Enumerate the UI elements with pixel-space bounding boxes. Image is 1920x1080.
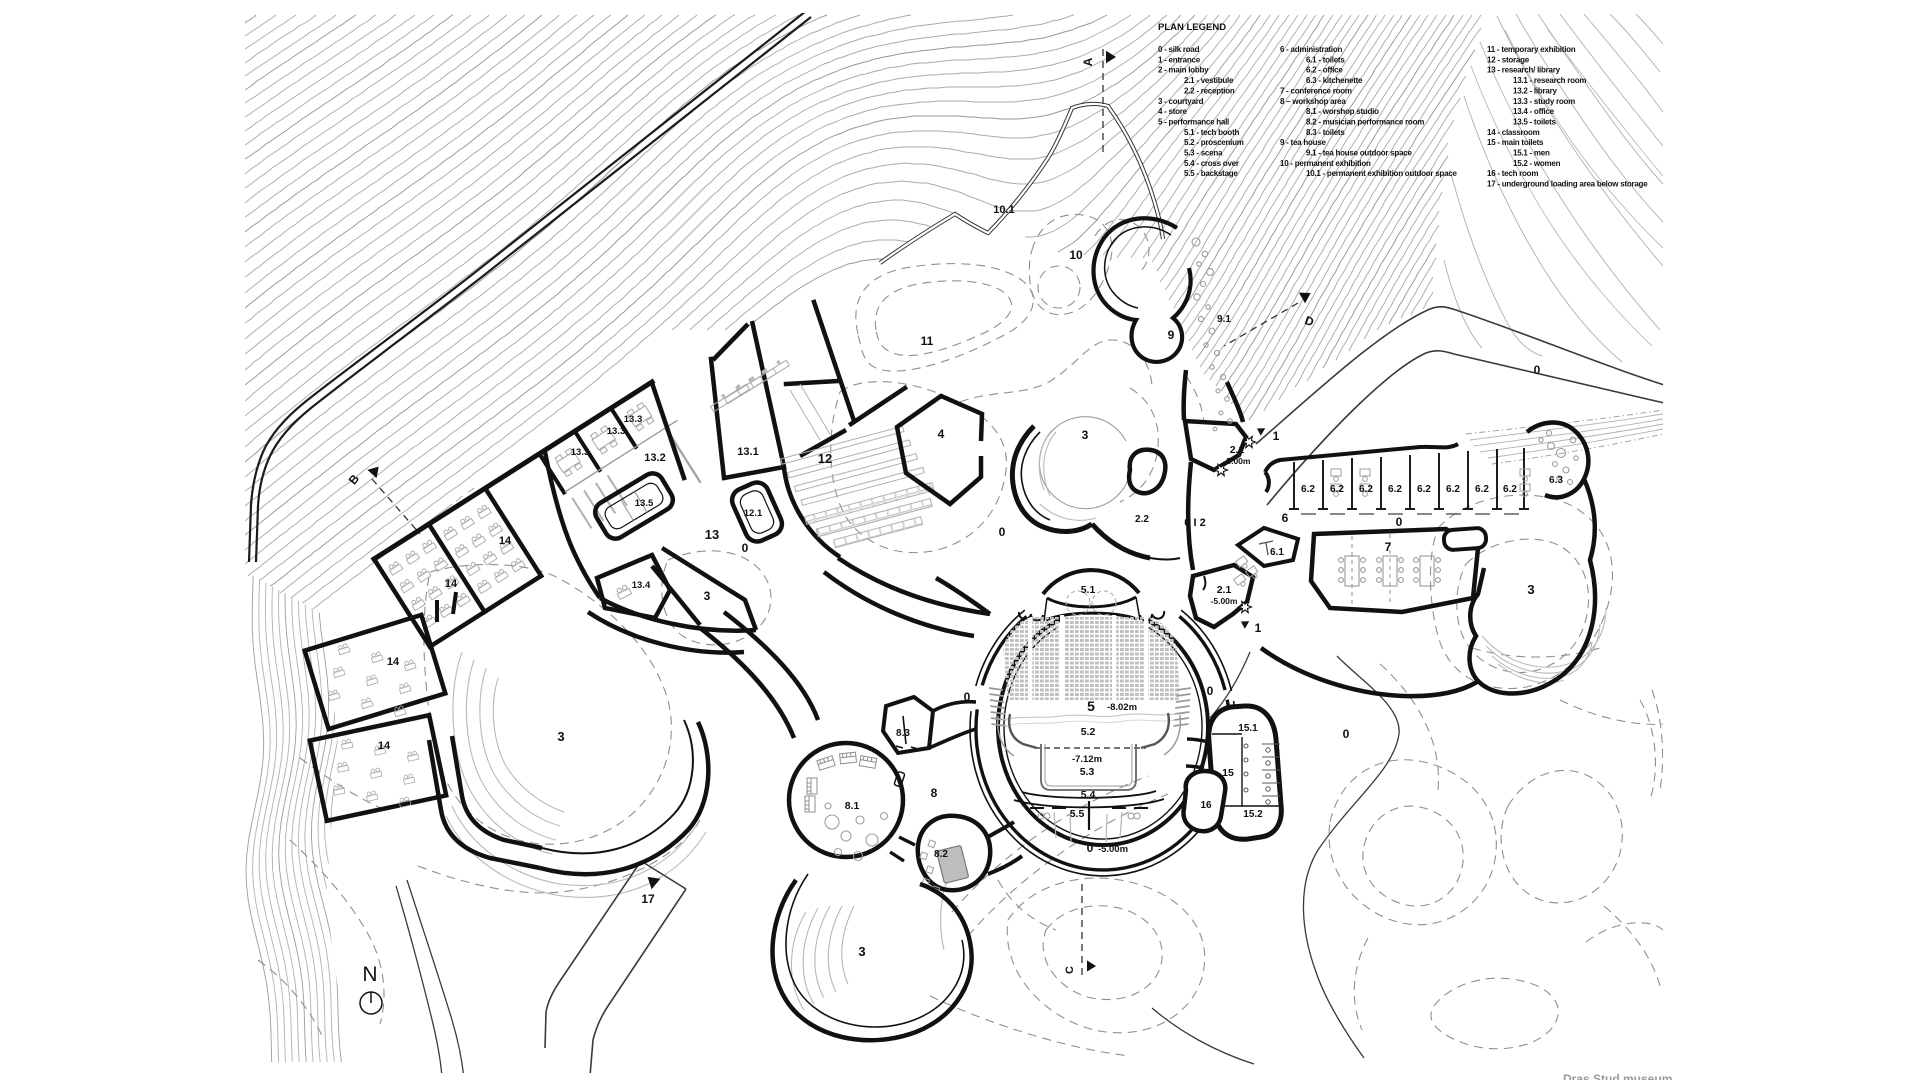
svg-text:7: 7 [1385,540,1392,554]
svg-text:0: 0 [742,541,749,555]
svg-text:14: 14 [445,578,458,590]
svg-text:6.3 - kitchenette: 6.3 - kitchenette [1306,76,1363,85]
svg-text:6.1: 6.1 [1270,547,1284,558]
svg-text:0: 0 [999,525,1006,539]
svg-text:-7.12m: -7.12m [1072,754,1102,765]
svg-text:2.1 - vestibule: 2.1 - vestibule [1184,76,1234,85]
svg-text:3 - courtyard: 3 - courtyard [1158,97,1204,106]
svg-text:8.1: 8.1 [845,800,860,812]
svg-text:13.4 - office: 13.4 - office [1513,107,1555,116]
svg-text:16: 16 [1200,800,1212,811]
svg-text:8.1 - worshop studio: 8.1 - worshop studio [1306,107,1379,116]
svg-text:Dras Stud museum: Dras Stud museum [1563,1072,1672,1080]
svg-text:6.2: 6.2 [1359,484,1373,495]
svg-text:13.5: 13.5 [635,498,654,509]
svg-text:9.1: 9.1 [1217,314,1231,325]
svg-text:3: 3 [858,944,865,959]
svg-text:0 I 2: 0 I 2 [1184,517,1205,529]
svg-text:2.1: 2.1 [1230,444,1245,456]
svg-text:13 - research/ library: 13 - research/ library [1487,66,1561,75]
svg-text:A: A [1081,57,1095,66]
svg-text:6.2: 6.2 [1388,484,1402,495]
svg-text:13.3: 13.3 [571,447,590,458]
svg-text:9.1 - tea house outdoor space: 9.1 - tea house outdoor space [1306,149,1412,158]
svg-text:13.5 - toilets: 13.5 - toilets [1513,117,1557,126]
svg-text:10 - permanent exhibition: 10 - permanent exhibition [1280,159,1371,168]
svg-text:5.1: 5.1 [1081,584,1096,596]
svg-text:8.2: 8.2 [934,849,948,860]
svg-text:5: 5 [1087,698,1095,714]
svg-text:6.2: 6.2 [1330,484,1344,495]
svg-text:10.1 - permanent exhibition ou: 10.1 - permanent exhibition outdoor spac… [1306,169,1457,178]
svg-text:13.3 - study room: 13.3 - study room [1513,97,1575,106]
svg-text:0: 0 [1396,515,1403,529]
svg-text:6.2: 6.2 [1503,484,1517,495]
svg-text:6.2 - office: 6.2 - office [1306,66,1343,75]
svg-text:8.2 - musician performance roo: 8.2 - musician performance room [1306,117,1424,126]
svg-text:16 - tech room: 16 - tech room [1487,169,1538,178]
svg-text:5.2 - proscenium: 5.2 - proscenium [1184,138,1244,147]
svg-text:1: 1 [1273,429,1280,443]
svg-text:5.5 - backstage: 5.5 - backstage [1184,169,1238,178]
svg-text:0: 0 [964,690,971,704]
svg-text:6.1 - toilets: 6.1 - toilets [1306,55,1345,64]
svg-text:10.1: 10.1 [993,204,1014,216]
svg-text:12.1: 12.1 [744,508,763,519]
svg-text:15.2 - women: 15.2 - women [1513,159,1561,168]
svg-text:0: 0 [1087,841,1094,855]
svg-text:0: 0 [1534,363,1541,377]
svg-text:9: 9 [1168,328,1175,342]
svg-text:13.1: 13.1 [737,446,758,458]
svg-text:8 – workshop area: 8 – workshop area [1280,97,1346,106]
svg-text:13.3: 13.3 [607,426,626,437]
svg-text:12 - storage: 12 - storage [1487,55,1530,64]
svg-text:N: N [362,963,377,986]
svg-text:4 - store: 4 - store [1158,107,1188,116]
svg-text:3: 3 [1527,582,1534,597]
svg-text:12: 12 [818,451,832,466]
svg-text:15.1 - men: 15.1 - men [1513,149,1550,158]
svg-text:13.4: 13.4 [632,580,651,591]
svg-text:3: 3 [557,729,564,744]
svg-text:5.1 - tech booth: 5.1 - tech booth [1184,128,1239,137]
svg-text:11 - temporary exhibition: 11 - temporary exhibition [1487,45,1576,54]
svg-text:5 - performance hall: 5 - performance hall [1158,117,1229,126]
svg-text:15 - main toilets: 15 - main toilets [1487,138,1544,147]
svg-text:6.2: 6.2 [1446,484,1460,495]
svg-text:5.3: 5.3 [1080,766,1095,778]
svg-text:13.3: 13.3 [624,414,643,425]
svg-text:6.2: 6.2 [1475,484,1489,495]
svg-text:14: 14 [387,656,400,668]
svg-text:1 - entrance: 1 - entrance [1158,55,1201,64]
svg-text:8.3: 8.3 [896,728,910,739]
svg-text:-5.00m: -5.00m [1224,456,1251,466]
svg-text:-5.00m: -5.00m [1211,596,1238,606]
svg-text:3: 3 [1082,428,1089,442]
svg-text:9 - tea house: 9 - tea house [1280,138,1326,147]
svg-text:5.3 - scena: 5.3 - scena [1184,149,1223,158]
svg-text:13.2: 13.2 [644,452,665,464]
svg-text:3: 3 [704,589,711,603]
svg-text:6 - administration: 6 - administration [1280,45,1343,54]
svg-text:2.2 - reception: 2.2 - reception [1184,86,1235,95]
svg-text:17 - underground loading area: 17 - underground loading area below stor… [1487,180,1648,189]
svg-text:8: 8 [931,786,938,800]
svg-text:0 - silk road: 0 - silk road [1158,45,1200,54]
svg-text:5.4 - cross over: 5.4 - cross over [1184,159,1239,168]
svg-text:15.1: 15.1 [1238,723,1258,734]
svg-text:2 - main lobby: 2 - main lobby [1158,66,1209,75]
svg-text:15.2: 15.2 [1243,809,1263,820]
svg-text:2.1: 2.1 [1217,584,1232,596]
svg-text:5.5: 5.5 [1070,808,1085,820]
svg-text:13: 13 [705,527,719,542]
svg-text:-8.02m: -8.02m [1107,702,1137,713]
svg-text:6.2: 6.2 [1301,484,1315,495]
svg-text:-5.00m: -5.00m [1098,844,1128,855]
svg-text:14: 14 [378,740,391,752]
svg-text:C: C [1064,966,1076,974]
svg-text:14: 14 [499,535,512,547]
svg-text:5.2: 5.2 [1081,726,1096,738]
svg-text:6.3: 6.3 [1549,475,1563,486]
svg-text:6.2: 6.2 [1417,484,1431,495]
svg-text:1: 1 [1255,621,1262,635]
svg-text:2.2: 2.2 [1135,514,1149,525]
svg-text:17: 17 [641,892,655,906]
svg-text:4: 4 [938,427,945,441]
svg-text:0: 0 [1207,684,1214,698]
svg-text:13.1 - research room: 13.1 - research room [1513,76,1586,85]
svg-text:0: 0 [1343,727,1350,741]
svg-text:13.2 - library: 13.2 - library [1513,86,1557,95]
svg-text:14 - classroom: 14 - classroom [1487,128,1540,137]
svg-text:PLAN LEGEND: PLAN LEGEND [1158,22,1226,33]
svg-text:7 - conference room: 7 - conference room [1280,86,1352,95]
svg-text:10: 10 [1069,248,1083,262]
svg-text:11: 11 [921,334,934,348]
svg-text:6: 6 [1282,511,1289,525]
svg-text:15: 15 [1222,767,1234,779]
svg-text:5.4: 5.4 [1081,789,1096,801]
svg-text:8.3 - toilets: 8.3 - toilets [1306,128,1345,137]
